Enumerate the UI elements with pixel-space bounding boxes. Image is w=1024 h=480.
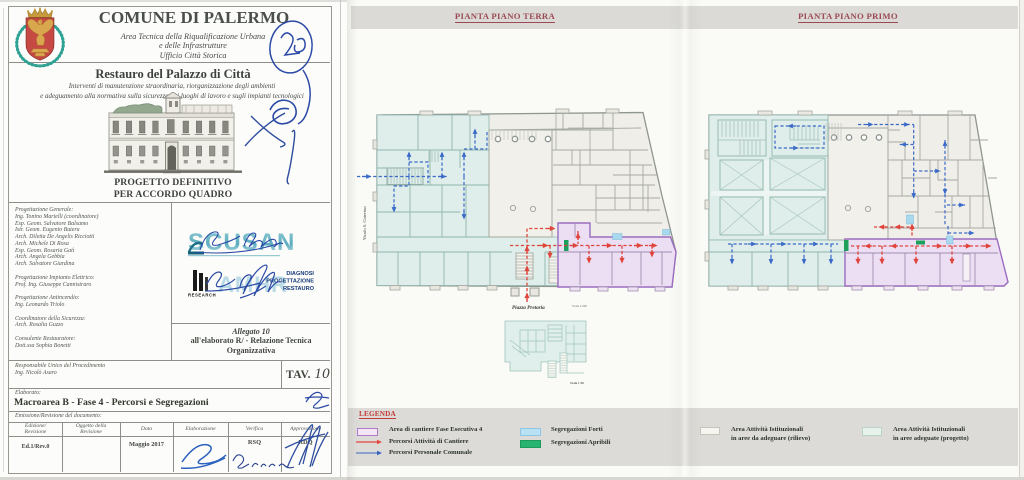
- svg-text:Piazza Pretoria: Piazza Pretoria: [512, 305, 545, 311]
- svg-text:Vicolo S. Caterina: Vicolo S. Caterina: [362, 206, 367, 240]
- svg-text:Scala 1:50: Scala 1:50: [570, 381, 584, 385]
- svg-text:Scala 1:200: Scala 1:200: [572, 304, 587, 308]
